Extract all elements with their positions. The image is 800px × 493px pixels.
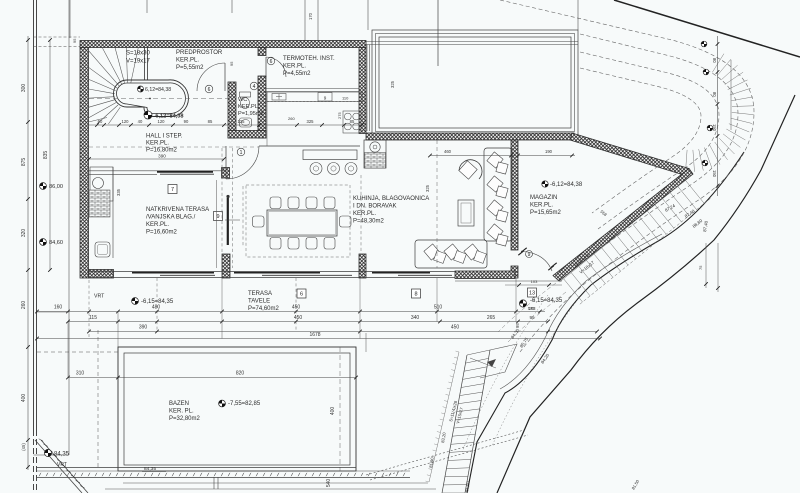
svg-text:VRT: VRT [94, 294, 105, 300]
svg-text:TERASA: TERASA [248, 291, 272, 297]
svg-text:325: 325 [390, 80, 395, 88]
svg-text:6,12=84,38: 6,12=84,38 [145, 87, 171, 93]
svg-text:P=74,60m2: P=74,60m2 [248, 306, 280, 312]
svg-text:NATKRIVENA TERASA: NATKRIVENA TERASA [146, 207, 209, 213]
svg-text:450: 450 [294, 315, 303, 321]
svg-text:480: 480 [152, 305, 161, 311]
svg-text:60: 60 [98, 119, 103, 124]
svg-text:95: 95 [529, 315, 535, 320]
svg-text:S=18x30: S=18x30 [126, 51, 151, 57]
svg-text:9: 9 [528, 252, 531, 258]
svg-text:7: 7 [171, 187, 174, 193]
svg-text:85: 85 [350, 119, 355, 124]
svg-text:75: 75 [698, 265, 703, 270]
svg-text:-6,15=84,35: -6,15=84,35 [530, 298, 563, 304]
svg-text:300: 300 [21, 84, 27, 93]
svg-text:103: 103 [531, 279, 538, 284]
svg-text:835: 835 [43, 151, 49, 160]
svg-text:115: 115 [89, 315, 97, 321]
svg-text:-6,15=84,35: -6,15=84,35 [141, 299, 174, 305]
svg-text:103: 103 [528, 306, 535, 311]
svg-text:150: 150 [712, 124, 717, 132]
svg-text:1678: 1678 [309, 332, 320, 338]
svg-text:KER.PL.: KER.PL. [146, 141, 169, 147]
svg-text:6: 6 [300, 292, 303, 298]
svg-text:P=5,55m2: P=5,55m2 [176, 65, 204, 71]
svg-text:4: 4 [253, 84, 256, 90]
svg-text:95: 95 [515, 323, 520, 328]
svg-text:310: 310 [76, 371, 85, 377]
svg-text:85: 85 [208, 119, 213, 124]
svg-text:P=15,65m2: P=15,65m2 [530, 210, 562, 216]
svg-text:P=4,55m2: P=4,55m2 [283, 71, 311, 77]
svg-text:KER.PL.: KER.PL. [283, 64, 306, 70]
svg-text:13: 13 [529, 291, 535, 297]
svg-text:160: 160 [54, 305, 63, 311]
svg-text:320: 320 [21, 229, 27, 238]
svg-text:150: 150 [712, 170, 717, 178]
svg-text:9: 9 [216, 214, 219, 220]
svg-text:6: 6 [208, 87, 211, 93]
svg-text:PREDPROSTOR: PREDPROSTOR [176, 50, 223, 56]
svg-text:-6,12=84,38: -6,12=84,38 [550, 182, 583, 188]
svg-text:9: 9 [324, 96, 327, 101]
svg-text:P=16,60m2: P=16,60m2 [146, 230, 178, 236]
svg-text:95: 95 [229, 61, 234, 66]
svg-text:820: 820 [236, 371, 245, 377]
svg-text:325: 325 [425, 184, 430, 192]
svg-text:KER.PL.: KER.PL. [176, 58, 199, 64]
svg-text:KER.PL.: KER.PL. [353, 211, 376, 217]
svg-text:325: 325 [307, 119, 315, 124]
svg-text:510: 510 [434, 305, 443, 311]
svg-text:KUHINJA, BLAGOVAONICA: KUHINJA, BLAGOVAONICA [353, 196, 429, 202]
svg-text:110: 110 [342, 96, 349, 101]
svg-text:400: 400 [21, 394, 27, 403]
svg-text:335: 335 [116, 188, 121, 196]
svg-text:1: 1 [240, 150, 243, 156]
svg-text:84,35: 84,35 [144, 466, 156, 472]
svg-text:120: 120 [158, 119, 166, 124]
svg-text:875: 875 [21, 158, 27, 167]
svg-text:-7,55=82,85: -7,55=82,85 [228, 401, 261, 407]
svg-text:I DN. BORAVAK: I DN. BORAVAK [353, 204, 396, 210]
svg-text:86,00: 86,00 [49, 184, 63, 190]
svg-text:265: 265 [487, 315, 496, 321]
svg-text:340: 340 [411, 315, 420, 321]
svg-text:460: 460 [444, 149, 452, 154]
svg-text:8: 8 [414, 292, 417, 298]
svg-text:260: 260 [288, 116, 295, 121]
svg-text:80: 80 [712, 58, 717, 63]
svg-text:190: 190 [545, 149, 553, 154]
svg-text:P=1,95m2: P=1,95m2 [238, 111, 264, 117]
svg-text:40: 40 [138, 119, 143, 124]
svg-text:VRT: VRT [57, 462, 67, 468]
svg-text:80: 80 [712, 92, 717, 97]
svg-text:TAVELE: TAVELE [248, 299, 270, 305]
svg-text:6: 6 [270, 59, 273, 65]
svg-text:450: 450 [451, 325, 460, 331]
svg-text:(45): (45) [21, 443, 26, 451]
svg-text:TERMOTEH. INST.: TERMOTEH. INST. [283, 56, 335, 62]
svg-text:P=48,30m2: P=48,30m2 [353, 219, 385, 225]
svg-text:KER.PL.: KER.PL. [146, 222, 169, 228]
svg-text:V=19x17: V=19x17 [126, 59, 151, 65]
svg-text:120: 120 [122, 119, 130, 124]
svg-text:84,35: 84,35 [54, 452, 70, 458]
svg-text:KER.PL.: KER.PL. [530, 203, 553, 209]
svg-text:84,60: 84,60 [49, 240, 63, 246]
svg-text:95: 95 [72, 38, 77, 43]
svg-text:260: 260 [21, 301, 27, 310]
svg-text:170: 170 [308, 12, 313, 20]
svg-text:400: 400 [330, 407, 336, 416]
svg-text:90: 90 [184, 119, 189, 124]
svg-text:275: 275 [337, 112, 342, 119]
svg-text:/VANJSKA BLAG./: /VANJSKA BLAG./ [146, 215, 196, 221]
svg-text:HALL I STEP.: HALL I STEP. [146, 134, 183, 140]
svg-text:KER. PL.: KER. PL. [169, 409, 194, 415]
svg-text:390: 390 [139, 325, 148, 331]
svg-text:390: 390 [158, 154, 166, 159]
svg-text:P=32,80m2: P=32,80m2 [169, 416, 201, 422]
svg-text:MAGAZIN: MAGAZIN [530, 195, 557, 201]
svg-text:BAZEN: BAZEN [169, 401, 189, 407]
